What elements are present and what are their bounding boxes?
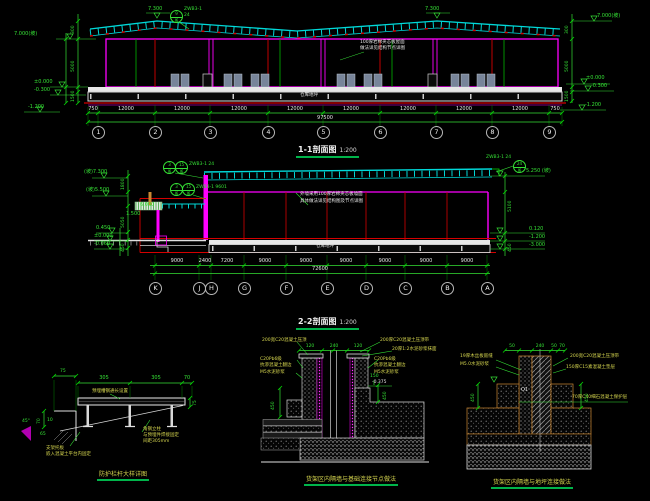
d2-note-left-1: C20Pb6级 (260, 358, 282, 363)
mid-right-chain-dim-2: 450 (509, 243, 514, 252)
top-total-dim: 97500 (317, 116, 333, 121)
d3-note-top-right-2: 150厚C15素混凝土垫层 (566, 366, 615, 371)
d2-dim-left: 450 (272, 401, 277, 410)
d2-note-top-right-2: 20厚1:2水泥砂浆抹面 (392, 348, 436, 353)
mid-left-chain-dim-3: 450 (122, 243, 127, 252)
detail2-title: 货架区内隔墙与基础连接节点做法 (304, 474, 398, 486)
top-dim-7: 12000 (456, 107, 472, 112)
d1-note-left-2: 嵌入混凝土平台内固定 (46, 453, 91, 458)
mid-dim-4: 9000 (300, 259, 313, 264)
d2-dim-2: 240 (330, 345, 339, 350)
detail3-title: 货架区内隔墙与地坪连接做法 (491, 477, 573, 489)
mid-dim-0: 9000 (171, 259, 184, 264)
mid-dim-2: 7200 (221, 259, 234, 264)
top-left-elev-m03: -0.300 (34, 88, 50, 93)
top-slab-label: 仓库地坪 (300, 94, 318, 99)
mid-left-chain-dim-2: 5050 (122, 217, 127, 228)
callout-sheet: J6 (176, 169, 187, 174)
d2-dim-1: 120 (306, 345, 315, 350)
d1-bracket-dim-a: 75 (60, 370, 66, 375)
mid-right-elev-1: 0.120 (529, 227, 543, 232)
top-dim-4: 12000 (287, 107, 303, 112)
top-grid-bubble-6: 6 (374, 126, 387, 139)
d3-note-top-left-1: 19厚木丝板嵌缝 (460, 355, 493, 360)
d3-dim-3: 50 (551, 345, 557, 350)
d2-dim-right: 450 (384, 391, 389, 400)
mid-dim-6: 9000 (379, 259, 392, 264)
mid-dim-7: 9000 (420, 259, 433, 264)
mid-canopy-dim-1: 6.000 (140, 203, 154, 208)
d1-dim-3: 70 (184, 376, 190, 381)
mid-dim-8: 9000 (461, 259, 474, 264)
d1-note-right-3: 间距305mm (143, 440, 169, 445)
top-grid-bubble-4: 4 (262, 126, 275, 139)
mid-left-chain-dim-1: 1800 (122, 179, 127, 190)
top-right-chain-dim-2: 5000 (566, 61, 571, 72)
top-dim-9: 750 (550, 107, 560, 112)
d3-dim-left: 450 (472, 393, 477, 402)
top-section-title: 1-1剖面图 1:200 (296, 144, 359, 158)
top-dim-2: 12000 (174, 107, 190, 112)
d1-dim-1: 305 (99, 376, 109, 381)
mid-callout-5-label: ZWB3-1 24 (486, 156, 511, 161)
top-grid-bubble-3: 3 (204, 126, 217, 139)
mid-canopy-dim-2: 1.500 (126, 212, 140, 217)
top-roof-note-1: 100厚岩棉夹芯板屋面 (360, 41, 405, 46)
d2-note-top-left: 200宽C20混凝土压顶 (262, 339, 306, 344)
callout-sheet: J6 (171, 18, 182, 23)
mid-right-elev-top: 5.250 (坡) (526, 169, 551, 174)
mid-grid-bubble-G: G (238, 282, 251, 295)
mid-left-elev-4: ±0.000 (94, 234, 113, 239)
top-dim-1: 12000 (118, 107, 134, 112)
d2-note-left-2: 抗渗混凝土翻边 (260, 364, 292, 369)
callout-sheet: J6 (164, 169, 175, 174)
d3-note-top-right-1: 200宽C20混凝土压顶带 (570, 355, 619, 360)
d1-note-beam: 预埋槽钢通长设置 (92, 390, 128, 395)
top-right-elev-m03: -0.300 (591, 84, 607, 89)
mid-grid-bubble-K: K (149, 282, 162, 295)
top-right-chain-dim-1: 300 (566, 25, 571, 34)
title-text: 2-2剖面图 (298, 316, 336, 327)
d1-bracket-dim-c: 10 (47, 419, 53, 424)
mid-left-elev-5: -0.060 (94, 242, 110, 247)
mid-slab-label: 仓库地坪 (316, 245, 334, 250)
d1-note-right-1: 角钢立柱 (143, 428, 161, 433)
top-grid-bubble-7: 7 (430, 126, 443, 139)
mid-right-chain-dim-1: 5100 (509, 201, 514, 212)
top-grid-bubble-8: 8 (486, 126, 499, 139)
top-detail-callout: 9 J6 (170, 10, 183, 23)
d3-note-right-3: 70厚C40细石混凝土保护层 (572, 396, 627, 401)
detail-foundation1-linework (261, 342, 429, 462)
d2-dim-3: 120 (354, 345, 363, 350)
top-dim-8: 12000 (512, 107, 528, 112)
middle-section-linework (88, 166, 545, 280)
top-peak-elevation-2: 7.300 (425, 7, 439, 12)
door-blocks (171, 74, 495, 87)
mid-grid-bubble-A: A (481, 282, 494, 295)
top-callout-label: ZWB3-1 (184, 8, 202, 13)
mid-dim-1: 2400 (199, 259, 212, 264)
title-text: 1-1剖面图 (298, 144, 336, 155)
mid-left-elev-1: (坡)7.300 (84, 170, 107, 175)
top-right-chain-dim-3: 1500 (566, 91, 571, 102)
mid-dim-3: 9000 (259, 259, 272, 264)
title-scale: 1:200 (339, 319, 356, 326)
mid-callout-34-label: ZWB3-1 9601 (196, 186, 227, 191)
top-left-chain-dim-2: 5000 (72, 61, 77, 72)
top-grid-bubble-9: 9 (543, 126, 556, 139)
d1-dim-right: 75 (194, 400, 199, 406)
mid-callout-4: 15 J6 (182, 183, 195, 196)
callout-sheet: J6 (514, 168, 525, 173)
d1-bracket-dim-d: 65 (40, 433, 46, 438)
d2-note-right-2: 抗渗混凝土翻边 (374, 364, 406, 369)
mid-left-elev-2: (坡)5.500 (86, 188, 109, 193)
mid-left-elev-3: 0.450 (96, 226, 110, 231)
d1-note-left-1: 支架托板 (46, 447, 64, 452)
mid-note-2: 具体做法详见结构图及节点详图 (300, 200, 363, 205)
top-left-elev-zero: ±0.000 (34, 80, 53, 85)
top-grid-bubble-5: 5 (317, 126, 330, 139)
top-section-linework (24, 13, 614, 130)
cad-drawing-canvas: 7.300 7.300 7.000(坡) ±0.000 -0.300 -1.20… (0, 0, 650, 501)
d3-dim-1: 50 (509, 345, 515, 350)
linework-layer (0, 0, 650, 501)
d2-note-top-right-1: 200厚C20混凝土压顶带 (380, 339, 429, 344)
top-grid-bubble-1: 1 (92, 126, 105, 139)
d3-note-top-left-2: M5.0水泥砂浆 (460, 363, 489, 368)
d1-note-right-2: 与预埋件焊接固定 (143, 434, 179, 439)
top-left-chain-dim-3: 1500 (72, 91, 77, 102)
mid-callout-2: 15 J6 (175, 161, 188, 174)
d3-dim-4: 70 (559, 345, 565, 350)
d3-wall-tag: Q1 (521, 388, 528, 393)
mid-grid-bubble-D: D (360, 282, 373, 295)
d2-note-right-1: C20Pb6级 (374, 358, 396, 363)
d2-elevation-right: -0.375 (372, 381, 387, 386)
mid-grid-bubble-E: E (321, 282, 334, 295)
top-right-elevation: 7.000(坡) (597, 14, 620, 19)
top-right-elev-m12: -1.200 (585, 103, 601, 108)
d3-dim-right: 450 (586, 393, 591, 402)
top-grid-bubble-2: 2 (149, 126, 162, 139)
d3-dim-2: 240 (536, 345, 545, 350)
top-left-elevation: 7.000(坡) (14, 32, 37, 37)
top-callout-sub: 24 (184, 14, 190, 19)
mid-callout-5: 24 J6 (513, 160, 526, 173)
middle-section-title: 2-2剖面图 1:200 (296, 316, 359, 330)
mid-grid-bubble-B: B (441, 282, 454, 295)
mid-right-elev-2: -1.200 (529, 235, 545, 240)
title-scale: 1:200 (339, 147, 356, 154)
detail1-title: 防护栏杆大样详图 (97, 469, 149, 481)
mid-callout-12-label: ZWB3-1 24 (189, 163, 214, 168)
mid-grid-bubble-H: H (205, 282, 218, 295)
d2-note-left-3: M5水泥砂浆 (260, 371, 285, 376)
mid-grid-bubble-C: C (399, 282, 412, 295)
top-dim-3: 12000 (231, 107, 247, 112)
callout-sheet: J6 (183, 191, 194, 196)
d2-dim-right-2: 150 (370, 375, 379, 380)
top-dim-0: 750 (88, 107, 98, 112)
d1-bracket-dim-e: 45° (22, 420, 30, 425)
top-dim-5: 12000 (343, 107, 359, 112)
top-right-elev-zero: ±0.000 (586, 76, 605, 81)
callout-sheet: J6 (171, 191, 182, 196)
top-left-chain-dim-1: 300 (72, 25, 77, 34)
top-roof-note-2: 做法详见结构节点详图 (360, 47, 405, 52)
mid-note-1: 外墙采用100厚岩棉夹芯板墙面 (300, 193, 363, 198)
d1-dim-2: 305 (151, 376, 161, 381)
top-dim-6: 12000 (400, 107, 416, 112)
d1-bracket-dim-b: 70 (38, 418, 43, 424)
mid-right-elev-3: -3.000 (529, 243, 545, 248)
mid-grid-bubble-F: F (280, 282, 293, 295)
mid-dim-5: 9000 (340, 259, 353, 264)
top-left-elev-m12: -1.200 (28, 105, 44, 110)
mid-total-dim: 72600 (312, 267, 328, 272)
top-peak-elevation-1: 7.300 (148, 7, 162, 12)
